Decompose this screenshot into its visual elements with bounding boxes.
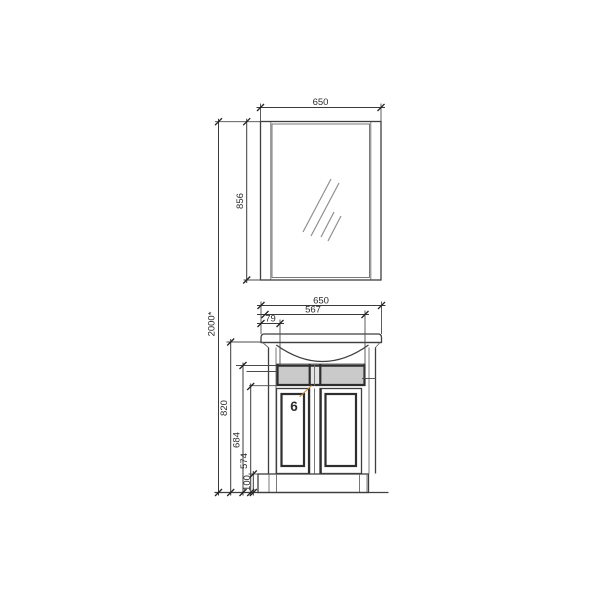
worktop-rim [261, 334, 382, 343]
plinth [258, 474, 369, 493]
rim-chamfer-left [263, 343, 269, 348]
mirror-reflection-icon [303, 179, 341, 241]
vanity-mirror-diagram: 650 856 2000* 650 567 79 820 684 574 100… [0, 0, 600, 600]
right-door [320, 389, 362, 474]
label-mirror-width: 650 [313, 97, 329, 108]
mirror-glass [272, 124, 370, 278]
label-side-offset: 79 [265, 314, 276, 325]
label-plinth-height: 100 [242, 475, 253, 491]
drawer-band [277, 364, 366, 386]
dimension-lines [219, 108, 386, 496]
basin-arc [276, 345, 368, 362]
label-mirror-height: 856 [235, 193, 246, 209]
rim-chamfer-right [376, 343, 381, 348]
mirror-frame [261, 122, 382, 281]
label-worktop-height: 820 [219, 400, 230, 416]
label-door-height: 574 [239, 453, 250, 469]
right-door-panel [326, 394, 357, 466]
dimension-labels: 650 856 2000* 650 567 79 820 684 574 100 [207, 97, 329, 491]
technical-drawing: 650 856 2000* 650 567 79 820 684 574 100… [0, 0, 600, 600]
label-basin-width: 567 [305, 305, 321, 316]
label-band-height: 684 [231, 432, 242, 448]
mirror [261, 122, 382, 281]
callout-number: 6 [290, 399, 298, 414]
label-total-height: 2000* [207, 311, 218, 336]
